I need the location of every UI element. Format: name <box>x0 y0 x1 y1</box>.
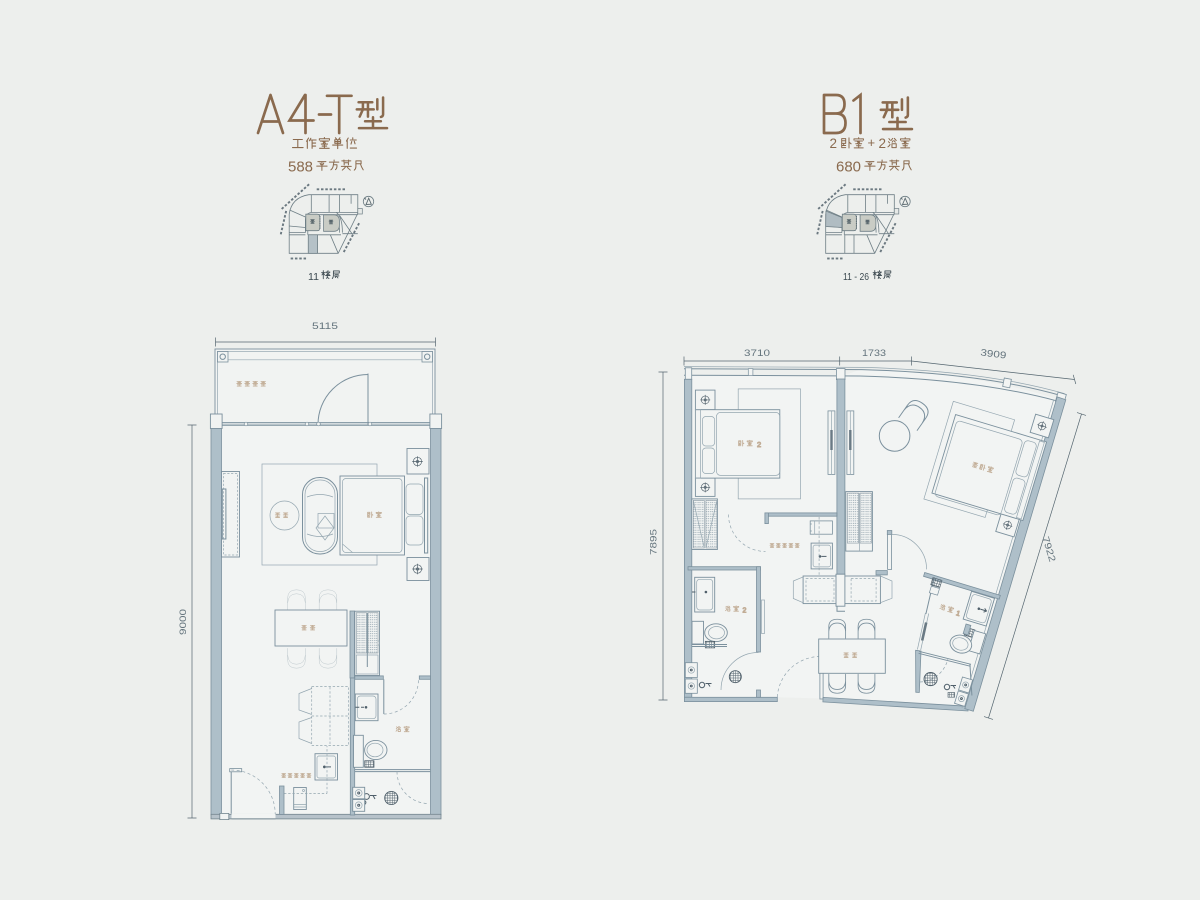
svg-text:9000: 9000 <box>178 609 189 635</box>
svg-text:1733: 1733 <box>862 348 886 359</box>
svg-text:+: + <box>868 135 876 150</box>
svg-text:3710: 3710 <box>744 348 770 359</box>
svg-text:588: 588 <box>288 159 313 176</box>
svg-text:680: 680 <box>836 159 861 176</box>
svg-text:2: 2 <box>879 136 887 151</box>
svg-text:5115: 5115 <box>312 321 338 332</box>
svg-text:7922: 7922 <box>1039 535 1057 563</box>
svg-text:2: 2 <box>743 607 747 614</box>
svg-text:3909: 3909 <box>980 347 1007 361</box>
svg-text:11 - 26: 11 - 26 <box>843 271 869 283</box>
svg-text:2: 2 <box>830 136 838 151</box>
svg-text:7895: 7895 <box>649 529 660 555</box>
svg-text:11: 11 <box>308 271 319 283</box>
svg-text:2: 2 <box>757 440 761 449</box>
